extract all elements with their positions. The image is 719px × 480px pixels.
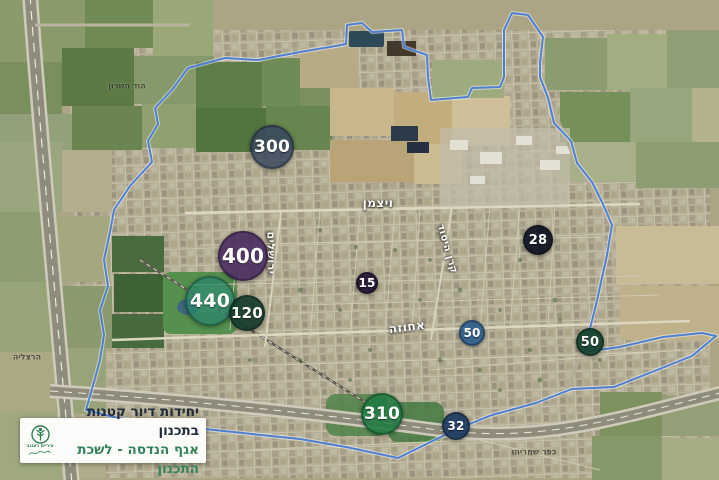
municipality-logo: עיריית רעננה <box>25 425 55 457</box>
legend-title: יחידות דיור קטנות בתכנון <box>60 403 199 441</box>
municipality-emblem-icon <box>31 425 50 444</box>
logo-signature-squiggle <box>28 450 52 456</box>
municipality-logo-caption: עיריית רעננה <box>26 445 53 450</box>
park-lake <box>177 299 199 315</box>
legend-texts: יחידות דיור קטנות בתכנון אגף הנדסה - לשכ… <box>60 403 199 479</box>
legend-box: עיריית רעננה יחידות דיור קטנות בתכנון אג… <box>20 418 206 463</box>
planning-map-canvas: ויצמןירושליםקרן היסודאחוזההוד השרוןהרצלי… <box>0 0 719 480</box>
legend-subtitle: אגף הנדסה - לשכת התכנון <box>60 441 199 479</box>
